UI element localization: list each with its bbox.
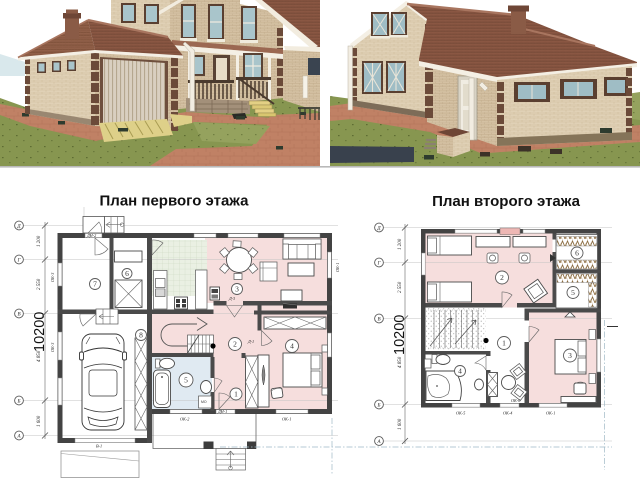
svg-text:4: 4: [458, 367, 462, 376]
svg-text:2: 2: [233, 340, 237, 349]
svg-text:Д-3: Д-3: [228, 296, 235, 301]
svg-text:1 200: 1 200: [37, 235, 42, 247]
svg-text:1: 1: [502, 339, 506, 348]
svg-text:8: 8: [139, 331, 143, 340]
svg-text:ДН-2: ДН-2: [86, 233, 96, 238]
svg-text:1 200: 1 200: [398, 238, 403, 250]
svg-text:3: 3: [568, 351, 572, 360]
svg-text:10200: 10200: [32, 312, 48, 352]
svg-text:Б: Б: [17, 400, 21, 405]
svg-text:2 550: 2 550: [37, 278, 42, 290]
svg-text:ОК-6: ОК-6: [511, 398, 521, 403]
svg-text:1: 1: [234, 390, 238, 399]
svg-text:1 600: 1 600: [37, 415, 42, 427]
svg-text:Г: Г: [377, 262, 381, 267]
svg-text:4: 4: [290, 342, 294, 351]
svg-text:6: 6: [125, 269, 129, 278]
svg-text:Г: Г: [17, 259, 21, 264]
svg-text:В: В: [17, 313, 20, 318]
svg-text:ОК-5: ОК-5: [456, 411, 465, 416]
svg-text:МО: МО: [201, 400, 207, 404]
svg-text:План первого этажа: План первого этажа: [100, 193, 250, 210]
svg-text:В: В: [377, 318, 380, 323]
svg-text:7: 7: [93, 280, 97, 289]
svg-text:Б: Б: [377, 404, 381, 409]
svg-text:3: 3: [235, 285, 239, 294]
svg-text:ОК-1: ОК-1: [546, 411, 555, 416]
svg-text:5: 5: [184, 376, 188, 385]
svg-text:ДН-1: ДН-1: [217, 409, 227, 414]
svg-text:Д-1: Д-1: [247, 339, 254, 344]
svg-text:6: 6: [575, 249, 579, 258]
svg-text:ОК-2: ОК-2: [180, 417, 189, 422]
svg-text:2 550: 2 550: [398, 281, 403, 293]
svg-text:ОК-3: ОК-3: [50, 343, 55, 352]
svg-text:В-1: В-1: [96, 444, 102, 449]
svg-text:5: 5: [571, 288, 575, 297]
svg-text:ОК-1: ОК-1: [335, 263, 340, 272]
svg-text:4 850: 4 850: [398, 356, 403, 368]
svg-text:ОК-3: ОК-3: [50, 273, 55, 282]
svg-text:1 600: 1 600: [398, 418, 403, 430]
svg-text:План второго этажа: План второго этажа: [432, 193, 581, 210]
svg-text:ОК-1: ОК-1: [282, 417, 291, 422]
svg-text:ОК-4: ОК-4: [503, 411, 512, 416]
svg-text:2: 2: [500, 273, 504, 282]
svg-text:10200: 10200: [392, 315, 408, 355]
